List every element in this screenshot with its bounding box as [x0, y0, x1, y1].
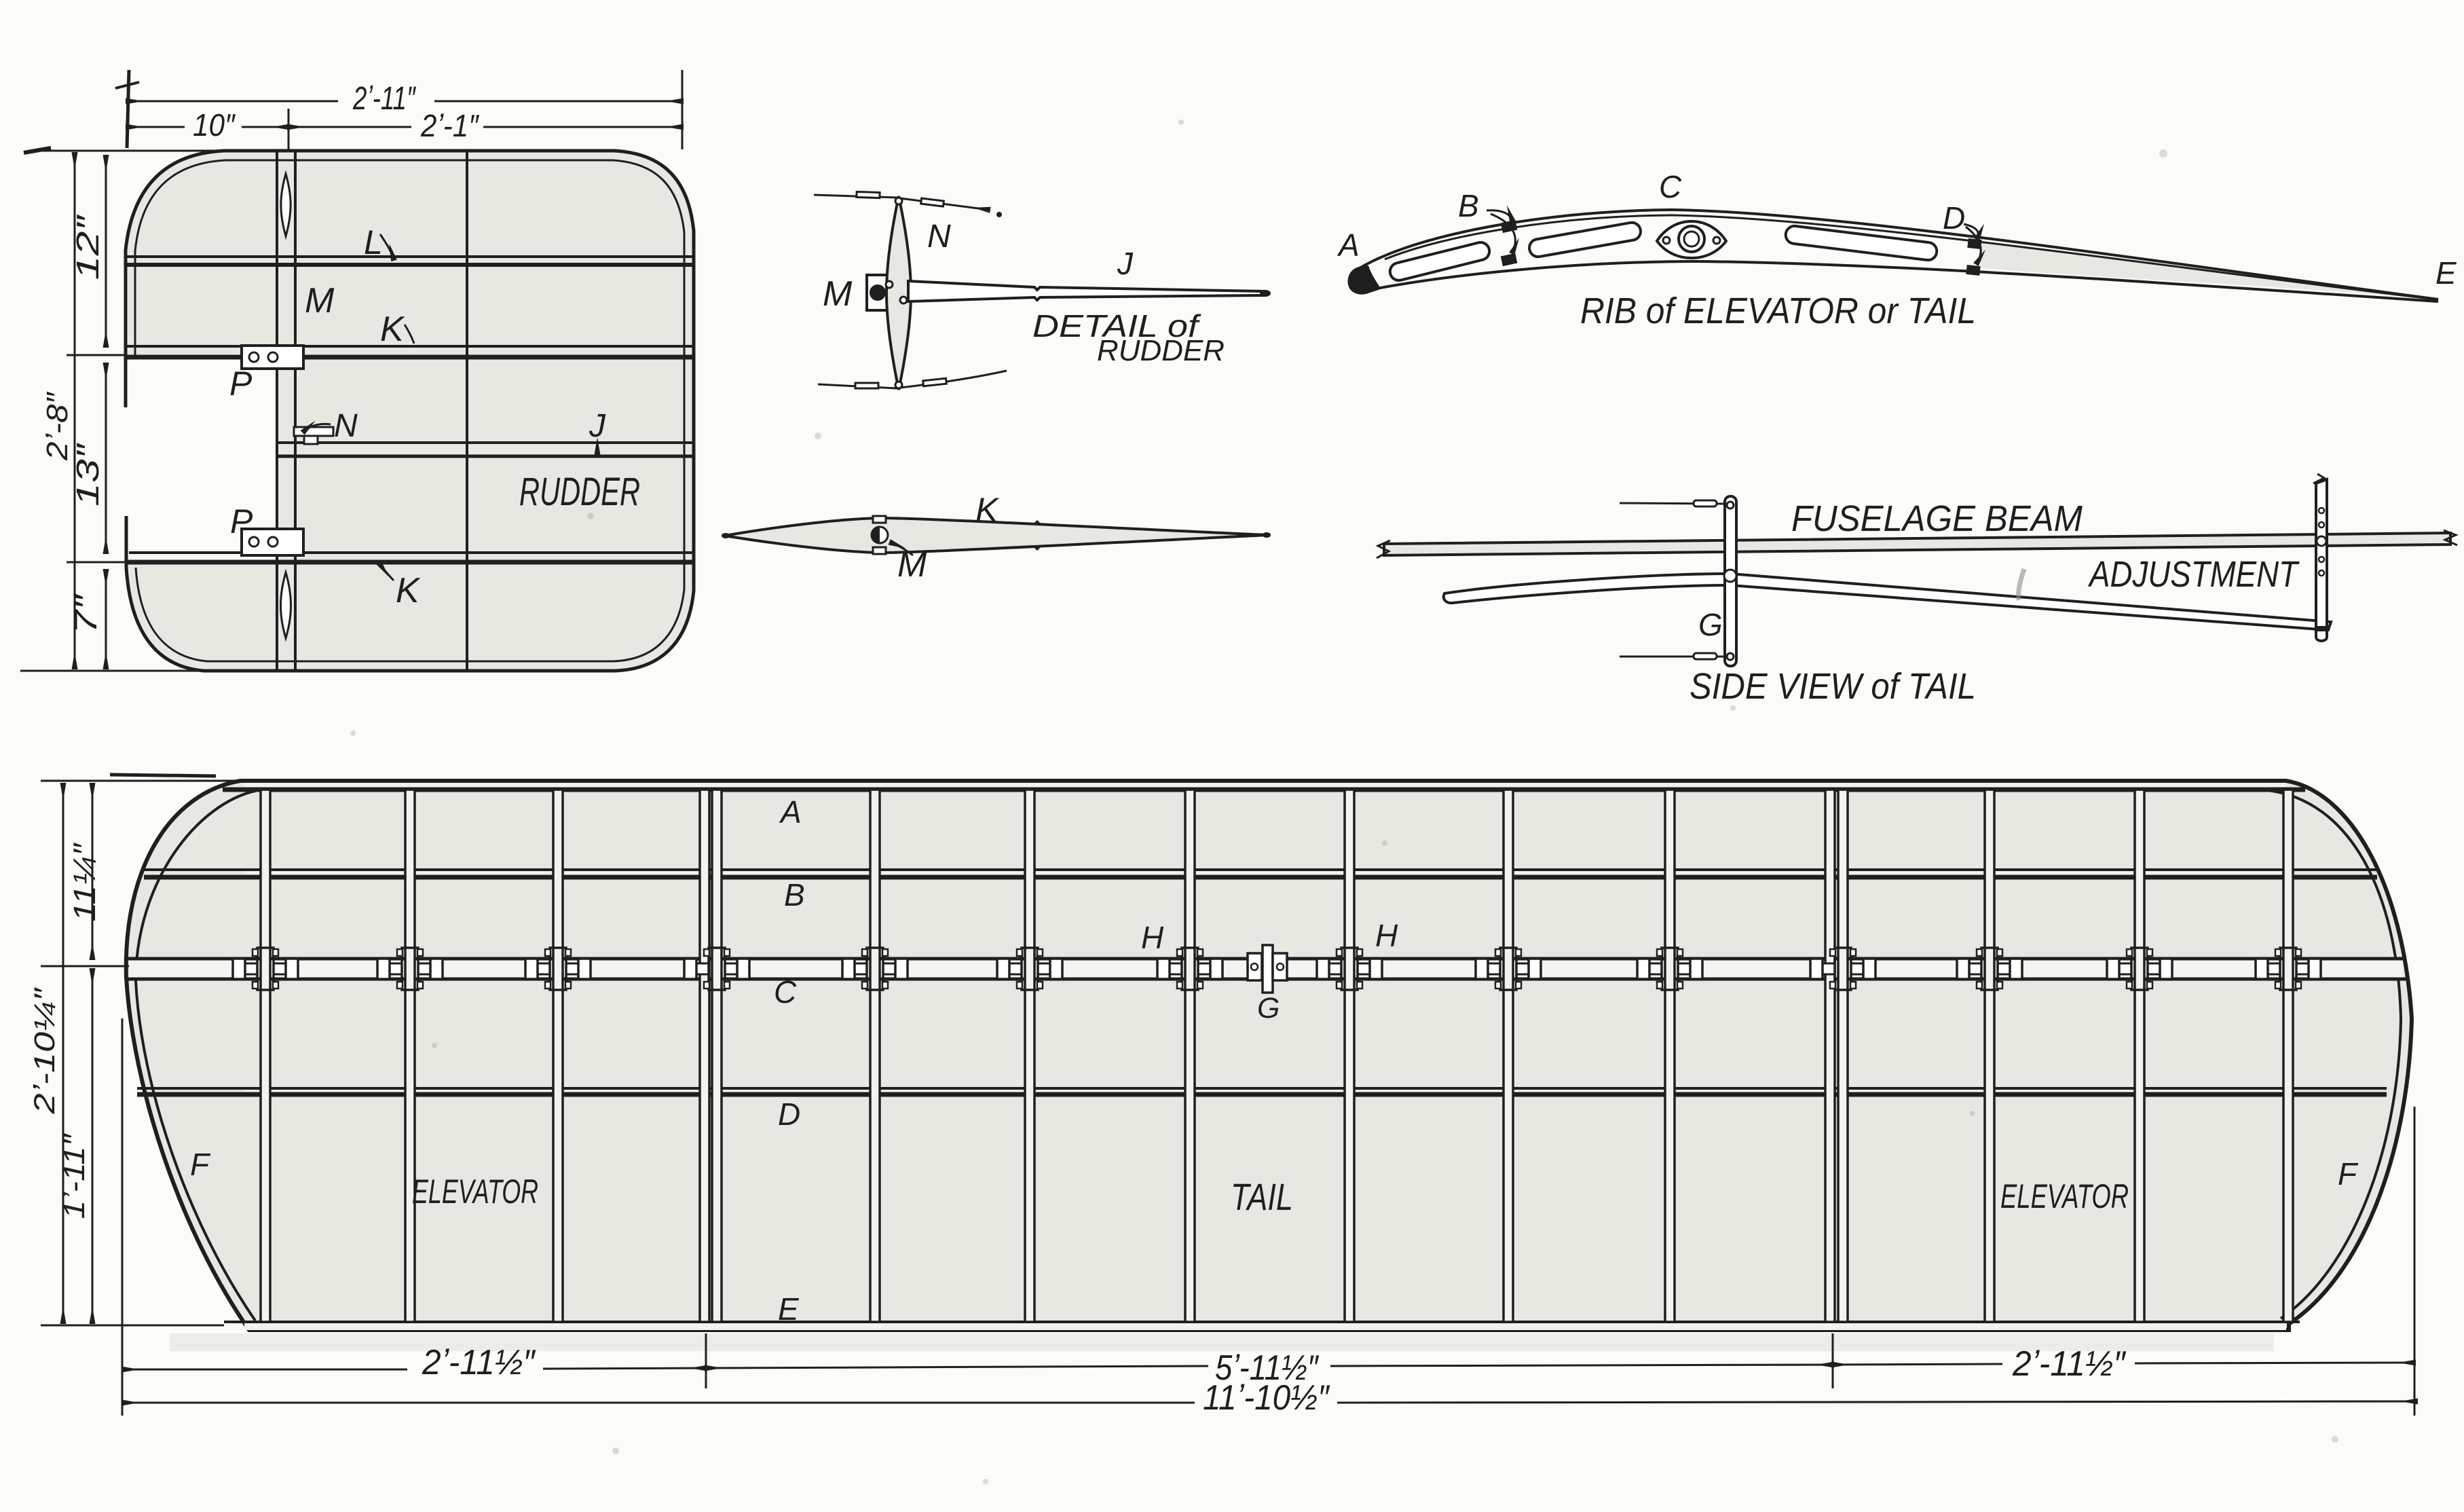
svg-text:TAIL: TAIL — [1231, 1175, 1293, 1218]
svg-text:ELEVATOR: ELEVATOR — [412, 1173, 538, 1211]
svg-text:F: F — [2338, 1156, 2359, 1192]
svg-text:RUDDER: RUDDER — [519, 470, 640, 514]
svg-text:K: K — [396, 571, 421, 610]
svg-text:E: E — [778, 1291, 800, 1327]
svg-text:P: P — [230, 502, 253, 540]
svg-text:D: D — [1943, 200, 1965, 236]
svg-text:M: M — [823, 274, 853, 314]
svg-text:2ʼ-8″: 2ʼ-8″ — [41, 391, 74, 461]
svg-text:11ʼ-10½″: 11ʼ-10½″ — [1203, 1378, 1330, 1418]
svg-text:12″: 12″ — [70, 214, 105, 280]
svg-text:FUSELAGE BEAM: FUSELAGE BEAM — [1791, 498, 2083, 539]
svg-text:K: K — [380, 310, 405, 349]
svg-text:E: E — [2435, 255, 2457, 291]
svg-text:L: L — [364, 223, 383, 261]
svg-text:H: H — [1375, 918, 1398, 953]
svg-text:A: A — [1337, 227, 1360, 263]
svg-text:H: H — [1141, 920, 1164, 955]
svg-text:ELEVATOR: ELEVATOR — [2000, 1177, 2129, 1215]
svg-text:ADJUSTMENT: ADJUSTMENT — [2087, 554, 2300, 595]
svg-text:2ʼ-11″: 2ʼ-11″ — [352, 81, 416, 117]
svg-text:RIB of ELEVATOR or TAIL: RIB of ELEVATOR or TAIL — [1580, 291, 1976, 331]
svg-text:13″: 13″ — [70, 443, 105, 506]
svg-text:B: B — [784, 877, 805, 912]
svg-text:11¼″: 11¼″ — [67, 842, 102, 921]
svg-text:C: C — [774, 974, 797, 1010]
svg-text:1ʼ-11″: 1ʼ-11″ — [58, 1133, 91, 1219]
svg-text:A: A — [779, 794, 802, 830]
svg-text:F: F — [190, 1147, 211, 1182]
svg-text:C: C — [1659, 169, 1682, 204]
svg-text:RUDDER: RUDDER — [1097, 334, 1225, 367]
svg-text:D: D — [778, 1096, 800, 1132]
svg-text:2ʼ-10¼″: 2ʼ-10¼″ — [29, 987, 61, 1114]
svg-text:2ʼ-11½″: 2ʼ-11½″ — [422, 1343, 536, 1382]
svg-text:M: M — [305, 281, 335, 320]
svg-text:2ʼ-1″: 2ʼ-1″ — [420, 108, 479, 143]
svg-text:G: G — [1257, 992, 1280, 1025]
svg-text:G: G — [1698, 607, 1723, 642]
svg-text:10″: 10″ — [193, 107, 236, 143]
svg-text:2ʼ-11½″: 2ʼ-11½″ — [2012, 1344, 2126, 1384]
svg-text:P: P — [229, 365, 253, 403]
svg-text:N: N — [927, 219, 951, 255]
svg-text:B: B — [1458, 188, 1479, 223]
svg-text:J: J — [589, 408, 606, 444]
svg-text:J: J — [1117, 246, 1134, 281]
svg-text:SIDE VIEW of TAIL: SIDE VIEW of TAIL — [1690, 666, 1976, 707]
svg-text:M: M — [897, 545, 927, 585]
svg-text:K: K — [975, 491, 1000, 529]
svg-text:N: N — [334, 408, 358, 444]
svg-text:7″: 7″ — [68, 593, 103, 634]
